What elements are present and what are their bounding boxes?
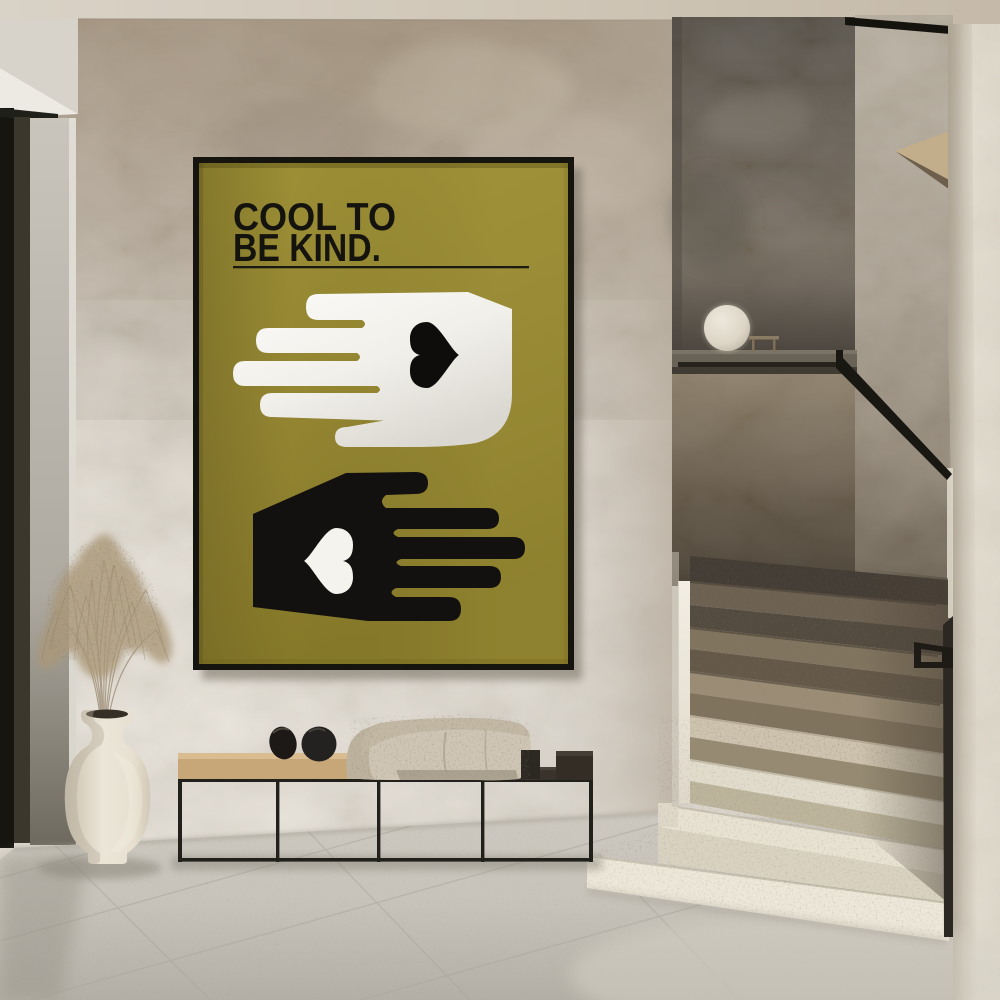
svg-text:BE KIND.: BE KIND. xyxy=(233,227,381,270)
